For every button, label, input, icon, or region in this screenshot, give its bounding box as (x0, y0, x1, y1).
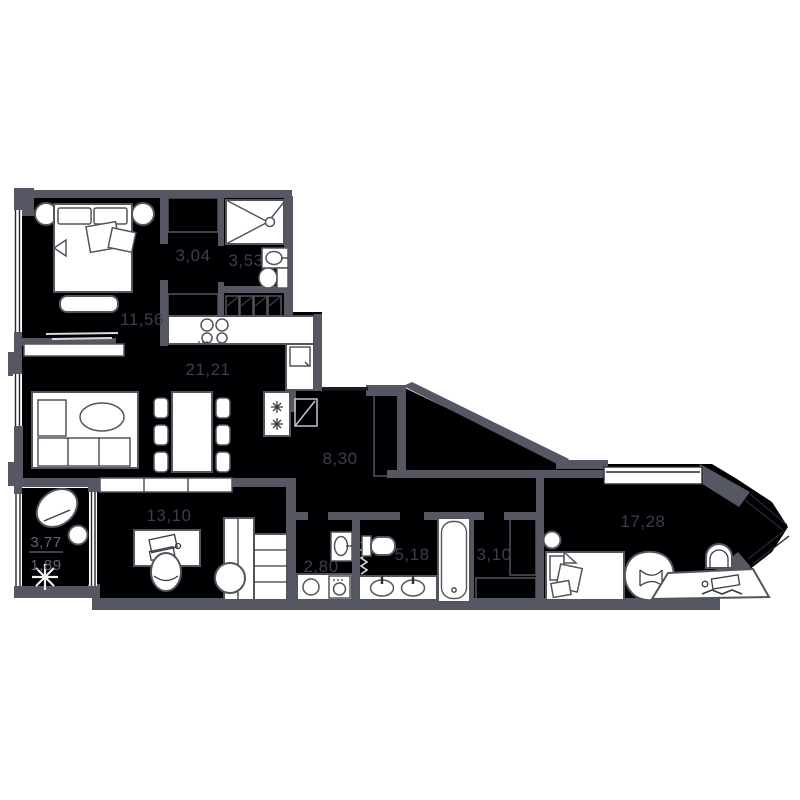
wall-bedroom2-top (556, 460, 608, 469)
wall-shower-bottom (224, 286, 284, 293)
wall-wc-top-a (296, 512, 308, 520)
label-bedroom-area: 11,56 (120, 310, 164, 329)
kitchen-counter (168, 316, 314, 344)
label-balcony-full: 3,77 (30, 534, 61, 551)
desk-chair (151, 553, 181, 591)
label-shower-area: 3,53 (228, 251, 263, 270)
window-balcony-divider (89, 492, 97, 586)
window-bedroom-left (13, 210, 22, 332)
window-bedroom2-top (604, 467, 702, 484)
window-living-left (13, 374, 22, 426)
window-glass (14, 494, 22, 586)
entry-door (322, 387, 368, 391)
balcony-table (69, 526, 88, 545)
entry-door-line (322, 387, 368, 391)
coffee-table (80, 403, 124, 431)
sofa (32, 392, 138, 468)
label-wc-area: 2,80 (303, 557, 338, 576)
chair (216, 452, 230, 472)
floor-plan-svg: 11,56 3,04 3,53 (0, 0, 800, 800)
desk-2 (652, 569, 769, 599)
chair (216, 425, 230, 445)
chair (154, 452, 168, 472)
wc-counter (297, 574, 352, 600)
wardrobe-b (254, 534, 287, 600)
wall-bedroom-dressing-a (160, 196, 168, 244)
label-bedroom2-area: 17,28 (620, 512, 665, 531)
nightstand-right (132, 203, 154, 225)
pouf (215, 563, 245, 593)
shelf-row (100, 478, 232, 492)
wall-balcony-corner-br (88, 584, 100, 598)
bath-toilet-bowl (371, 537, 395, 555)
wall-balcony-corner-tl (14, 480, 22, 494)
label-study-area: 13,10 (146, 506, 191, 525)
wall-balcony-corner-tr (88, 478, 100, 492)
window-glass (89, 492, 97, 586)
chair (216, 398, 230, 418)
shower-drain (266, 218, 275, 227)
wall-left-sill (14, 330, 22, 346)
wall-wc-top-b (328, 512, 400, 520)
window-glass (604, 467, 702, 484)
wall-kitchen-right (314, 314, 322, 391)
bed-bench (60, 296, 118, 312)
bath-toilet-tank (362, 536, 371, 556)
dining-table (172, 392, 212, 472)
wall-dressing-shower-a (218, 196, 224, 246)
window-glass (13, 210, 22, 332)
label-closet-area: 3,10 (476, 545, 511, 564)
label-hallway-area: 8,30 (322, 449, 357, 468)
wall-corridor-bottom (387, 470, 604, 478)
window-balcony-left (14, 494, 22, 586)
label-kitchen-living-area: 21,21 (185, 360, 230, 379)
single-bed-blanket-b (551, 581, 571, 598)
bathtub (438, 518, 470, 602)
label-balcony-counted: 1,89 (30, 557, 61, 574)
floor-plan-page: 11,56 3,04 3,53 (0, 0, 800, 800)
wall-closet-top (504, 512, 538, 520)
pillow-left (58, 208, 91, 224)
toilet-tank (277, 268, 288, 288)
dining-set (154, 392, 230, 472)
pilaster-left-a (8, 352, 20, 376)
toilet-bowl (259, 268, 277, 288)
label-dressing-area: 3,04 (175, 246, 210, 265)
pillow-right (94, 208, 127, 224)
tv-console (24, 344, 124, 356)
shower-tray (226, 200, 284, 244)
window-glass (13, 374, 22, 426)
bedside-stool (544, 532, 561, 549)
label-bathroom-area: 5,18 (394, 545, 429, 564)
wall-balcony-bottom (14, 586, 98, 598)
chair (154, 398, 168, 418)
chair (154, 425, 168, 445)
blanket-b (108, 228, 136, 253)
